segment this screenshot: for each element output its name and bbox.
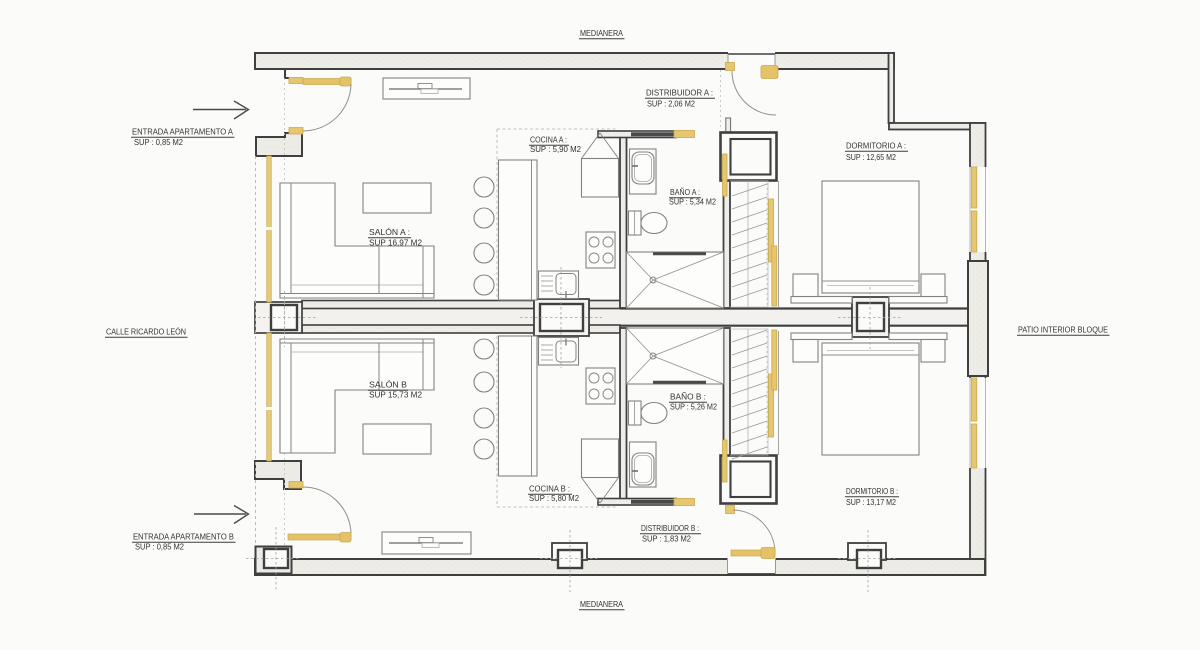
svg-text:SUP : 2,06 M2: SUP : 2,06 M2: [647, 100, 695, 109]
svg-text:SUP : 5,90 M2: SUP : 5,90 M2: [530, 145, 582, 154]
svg-text:ENTRADA APARTAMENTO A: ENTRADA APARTAMENTO A: [132, 128, 233, 137]
svg-text:PATIO INTERIOR BLOQUE: PATIO INTERIOR BLOQUE: [1018, 326, 1108, 335]
svg-text:DISTRIBUIDOR B :: DISTRIBUIDOR B :: [641, 524, 699, 533]
svg-text:COCINA A :: COCINA A :: [530, 136, 567, 145]
svg-text:SUP : 5,34 M2: SUP : 5,34 M2: [669, 198, 716, 207]
svg-text:MEDIANERA: MEDIANERA: [580, 29, 623, 38]
svg-text:DORMITORIO A :: DORMITORIO A :: [846, 142, 906, 151]
svg-text:BAÑO B :: BAÑO B :: [670, 392, 706, 402]
svg-text:SUP : 0,85 M2: SUP : 0,85 M2: [135, 543, 185, 552]
svg-text:DORMITORIO B :: DORMITORIO B :: [846, 487, 898, 496]
svg-text:ENTRADA APARTAMENTO B: ENTRADA APARTAMENTO B: [133, 533, 234, 542]
svg-text:CALLE RICARDO LEÓN: CALLE RICARDO LEÓN: [106, 327, 186, 337]
svg-text:SUP : 5,80 M2: SUP : 5,80 M2: [529, 494, 580, 503]
svg-text:COCINA B :: COCINA B :: [529, 485, 570, 494]
svg-text:SUP : 13,17 M2: SUP : 13,17 M2: [846, 498, 896, 507]
svg-text:SUP : 5,26 M2: SUP : 5,26 M2: [670, 403, 717, 412]
svg-text:BAÑO A :: BAÑO A :: [670, 187, 700, 197]
svg-text:DISTRIBUIDOR A :: DISTRIBUIDOR A :: [646, 89, 713, 98]
svg-text:SALÓN B: SALÓN B: [369, 380, 408, 390]
svg-text:MEDIANERA: MEDIANERA: [580, 600, 623, 609]
svg-text:SUP : 12,65 M2: SUP : 12,65 M2: [846, 153, 896, 162]
svg-text:SUP : 1,83 M2: SUP : 1,83 M2: [642, 535, 692, 544]
svg-text:SUP : 0,85 M2: SUP : 0,85 M2: [134, 138, 184, 147]
svg-text:SUP 16,97 M2: SUP 16,97 M2: [369, 239, 423, 248]
svg-text:SUP 15,73 M2: SUP 15,73 M2: [369, 391, 423, 400]
svg-text:SALÓN A :: SALÓN A :: [369, 227, 410, 237]
